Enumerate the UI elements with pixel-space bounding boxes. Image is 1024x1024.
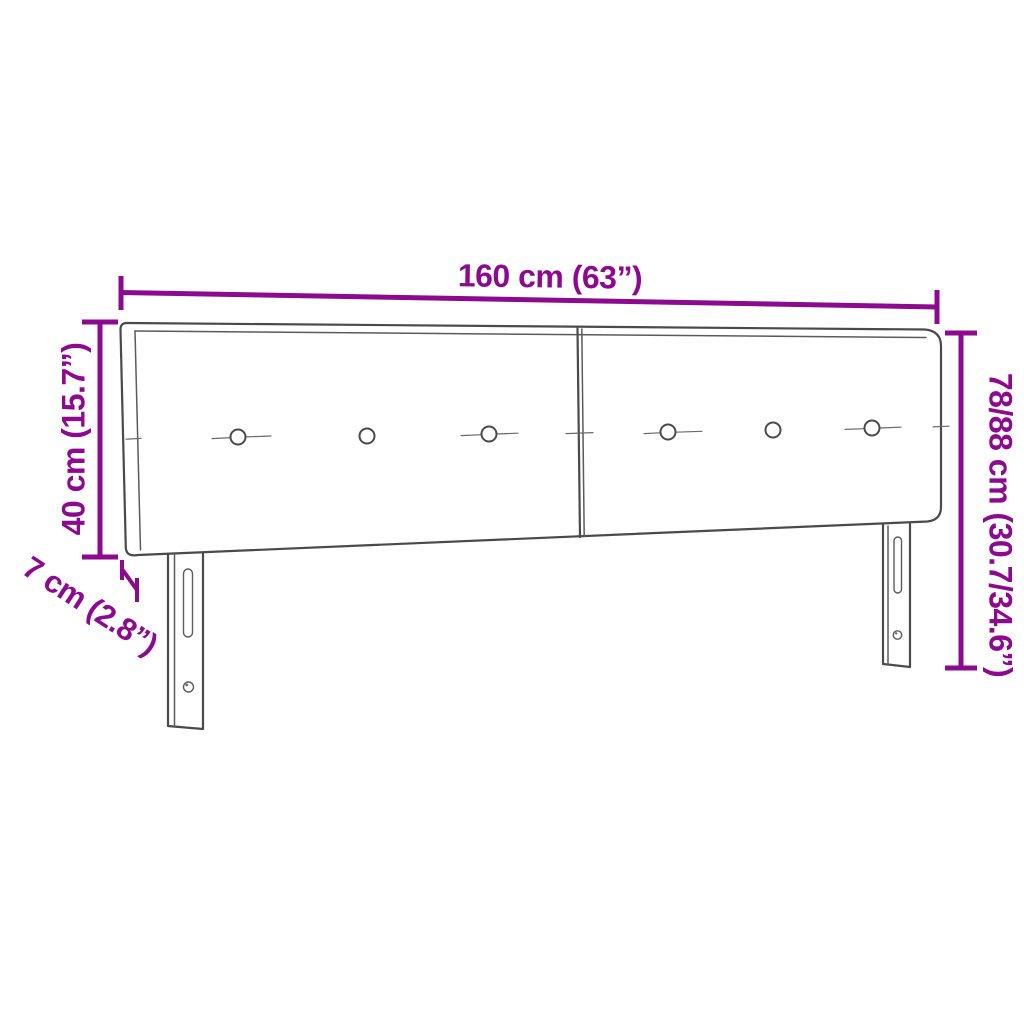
dimension-diagram: 160 cm (63”) 40 cm (15.7”) 78/88 cm (30.… xyxy=(0,0,1024,1024)
panel-height-dimension-label: 40 cm (15.7”) xyxy=(56,343,93,536)
total-height-dimension-label: 78/88 cm (30.7/34.6”) xyxy=(982,373,1019,677)
right-leg-slot xyxy=(894,537,902,593)
depth-dimension-leader xyxy=(122,560,137,602)
left-leg-slot xyxy=(184,569,193,637)
left-leg-screw-hole xyxy=(184,682,194,692)
right-leg-screw-hole xyxy=(893,631,901,639)
headboard-buttons xyxy=(126,421,949,445)
total-height-dimension-line xyxy=(945,333,977,668)
width-dimension-label: 160 cm (63”) xyxy=(458,257,643,297)
left-leg xyxy=(168,553,203,729)
headboard-line-drawing xyxy=(0,0,1024,1024)
right-leg xyxy=(883,524,910,667)
